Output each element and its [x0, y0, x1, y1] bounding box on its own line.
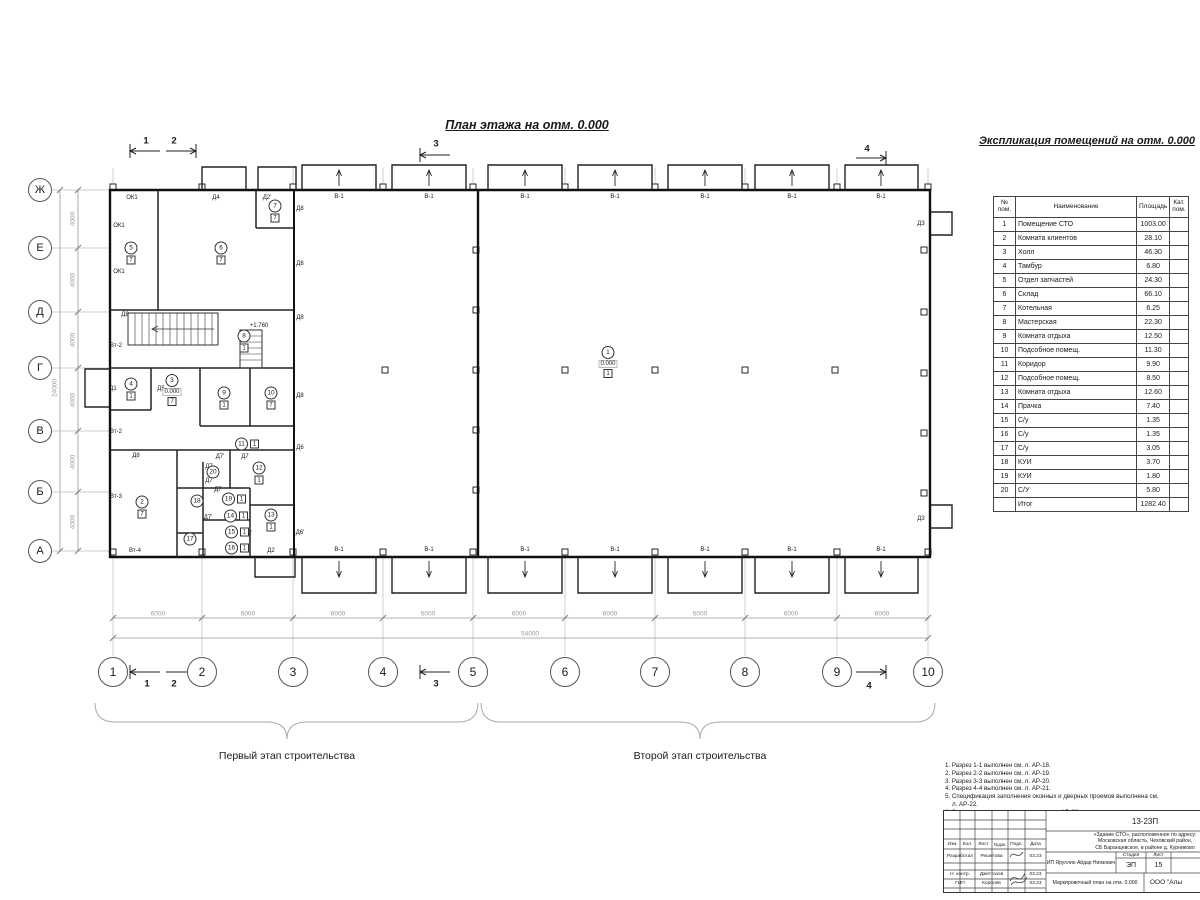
room-marker: 131 [265, 509, 278, 532]
col-category: Кат. пом. [1170, 197, 1188, 218]
plan-label: Д8 [132, 453, 139, 459]
plan-label: В-1 [700, 194, 709, 200]
table-row: 4Тамбур6.80 [994, 260, 1189, 274]
tb-date: 03.23 [1025, 879, 1046, 888]
room-number: 4 [125, 378, 138, 391]
room-number: 14 [224, 510, 237, 523]
project-address: «Здание СТО», расположенное по адресу: М… [1046, 831, 1200, 852]
section-marker-label: 2 [171, 136, 176, 147]
floor-type-mark: 1 [239, 512, 248, 521]
floor-type-mark: 7 [267, 401, 276, 410]
room-number: 15 [225, 526, 238, 539]
room-marker: 41 [125, 378, 138, 401]
table-row: 10Подсобное помещ.11.30 [994, 344, 1189, 358]
plan-label: Д1 [109, 386, 116, 392]
tb-role: Разработал [945, 849, 975, 863]
floor-type-mark: 1 [237, 495, 246, 504]
explication-title: Экспликация помещений на отм. 0.000 [979, 135, 1195, 147]
axis-bubble-9: 9 [822, 657, 852, 687]
tb-col-podp: Подп. [1008, 839, 1025, 849]
tb-name: Королев [975, 879, 1008, 888]
grid-and-columns [52, 168, 931, 656]
room-number: 5 [125, 242, 138, 255]
table-row: 18КУИ3.70 [994, 456, 1189, 470]
plan-label: В-1 [424, 547, 433, 553]
sheet-value: 15 [1146, 858, 1171, 873]
room-marker: 111 [235, 438, 259, 451]
plan-label: В-1 [334, 547, 343, 553]
dimension-label: 4000 [70, 212, 77, 226]
col-name: Наименование [1016, 197, 1137, 218]
table-row: 8Мастерская22.30 [994, 316, 1189, 330]
note-line: 2. Разрез 2-2 выполнен см. л. АР-19. [945, 770, 1165, 778]
axis-bubble-Е: Е [28, 236, 52, 260]
section-marker-label: 1 [144, 679, 149, 690]
floor-type-mark: 1 [240, 344, 249, 353]
plan-label: Вт-2 [110, 343, 122, 349]
plan-label: Д8 [296, 393, 303, 399]
table-row: 20С/У5.80 [994, 484, 1189, 498]
total-value: 1282.40 [1137, 498, 1170, 512]
room-marker: 81 [238, 330, 251, 353]
tb-col-izm: Изм [944, 839, 960, 849]
plan-label: Д2 [267, 548, 274, 554]
tb-role: ГИП [945, 879, 975, 888]
plan-label: Д4 [212, 195, 219, 201]
tb-col-data: Дата [1025, 839, 1046, 849]
dimension-label: 6000 [331, 611, 345, 618]
floor-type-mark: 1 [603, 369, 612, 378]
plan-label: Д3 [917, 221, 924, 227]
room-marker: 91 [218, 387, 231, 410]
table-row: 12Подсобное помещ.8.50 [994, 372, 1189, 386]
plan-label: Д8 [121, 312, 128, 318]
stage-value: ЭП [1116, 858, 1146, 873]
dimension-label: 4000 [70, 455, 77, 469]
plan-label: В-1 [610, 547, 619, 553]
gate-bays [85, 165, 952, 593]
room-marker: 151 [225, 526, 249, 539]
axis-bubble-1: 1 [98, 657, 128, 687]
note-line: 5. Спецификация заполнения оконных и две… [945, 793, 1165, 809]
tb-col-list: Лист [975, 839, 992, 849]
plan-label: +1.760 [250, 323, 269, 329]
dimension-label: 6000 [875, 611, 889, 618]
room-marker: 77 [269, 200, 282, 223]
floor-type-mark: 1 [250, 440, 259, 449]
table-row: 1Помещение СТО1003.00 [994, 218, 1189, 232]
elevation-mark: 0.000 [598, 360, 617, 368]
room-marker: 191 [222, 493, 246, 506]
table-row: 15С/у1.35 [994, 414, 1189, 428]
table-row: 14Прачка7.40 [994, 400, 1189, 414]
plan-label: Д6 [296, 445, 303, 451]
room-marker: 161 [225, 542, 249, 555]
table-row: 17С/у3.05 [994, 442, 1189, 456]
section-marker-label: 4 [866, 681, 871, 692]
table-row: 5Отдел запчастей24.30 [994, 274, 1189, 288]
dimension-label: 4000 [70, 273, 77, 287]
axis-bubble-8: 8 [730, 657, 760, 687]
plan-label: В-1 [787, 194, 796, 200]
tb-name: Решетова [975, 849, 1008, 863]
floor-type-mark: 7 [127, 256, 136, 265]
room-marker: 18 [191, 495, 204, 508]
note-line: 1. Разрез 1-1 выполнен см. л. АР-18. [945, 762, 1165, 770]
room-number: 13 [265, 509, 278, 522]
room-number: 17 [184, 533, 197, 546]
plan-label: Д8 [296, 206, 303, 212]
plan-label: ОК1 [113, 223, 125, 229]
dimension-label: 4000 [70, 333, 77, 347]
stage-braces [95, 703, 935, 739]
dimension-total-label: 54000 [521, 631, 539, 638]
drawing-notes: 1. Разрез 1-1 выполнен см. л. АР-18.2. Р… [945, 762, 1165, 816]
room-marker: 30.0007 [162, 374, 181, 406]
dimension-label: 6000 [512, 611, 526, 618]
axis-bubble-5: 5 [458, 657, 488, 687]
room-marker: 17 [184, 533, 197, 546]
plan-label: ОК1 [126, 195, 138, 201]
dimension-label: 6000 [784, 611, 798, 618]
room-marker: 121 [253, 462, 266, 485]
client-name: ИП Яруллин Айдар Ниязович [1046, 852, 1116, 873]
section-arrows [130, 144, 886, 679]
room-marker: 20 [207, 466, 220, 479]
plan-label: В-1 [520, 547, 529, 553]
room-number: 7 [269, 200, 282, 213]
table-row: 6Склад66.10 [994, 288, 1189, 302]
section-marker-label: 3 [433, 679, 438, 690]
plan-label: В-1 [334, 194, 343, 200]
axis-bubble-Б: Б [28, 480, 52, 504]
plan-label: Д8 [296, 315, 303, 321]
floor-type-mark: 7 [167, 397, 176, 406]
floor-type-mark: 1 [255, 476, 264, 485]
dimension-label: 6000 [693, 611, 707, 618]
room-number: 9 [218, 387, 231, 400]
dimension-baselines [60, 190, 928, 638]
axis-bubble-В: В [28, 419, 52, 443]
drawing-sheet: ЖЕДГВБА123456789106000600060006000600060… [0, 0, 1200, 900]
plan-label: Вт-3 [110, 494, 122, 500]
tb-col-doc: №док. [992, 839, 1008, 849]
dimension-label: 6000 [151, 611, 165, 618]
plan-label: Д7' [216, 454, 225, 460]
room-marker: 67 [215, 242, 228, 265]
total-label: Итог [1016, 498, 1137, 512]
section-marker-label: 3 [433, 139, 438, 150]
room-number: 16 [225, 542, 238, 555]
table-row: 16С/у1.35 [994, 428, 1189, 442]
plan-label: Вт-4 [129, 548, 141, 554]
axis-bubble-3: 3 [278, 657, 308, 687]
room-marker: 107 [265, 387, 278, 410]
dimension-total-label: 24000 [52, 379, 59, 397]
floor-type-mark: 7 [217, 256, 226, 265]
doc-number: 13-23П [1046, 811, 1200, 831]
room-marker: 27 [136, 496, 149, 519]
plan-label: Д7' [204, 515, 213, 521]
sheet-title: Маркировочный план на отм. 0.000 [1046, 873, 1144, 892]
dimension-label: 6000 [241, 611, 255, 618]
room-marker: 57 [125, 242, 138, 265]
tb-col-kol: Кол. [960, 839, 975, 849]
plan-label: В-1 [700, 547, 709, 553]
floor-type-mark: 1 [127, 392, 136, 401]
plan-label: Д7 [241, 454, 248, 460]
room-number: 12 [253, 462, 266, 475]
tb-date: 03.23 [1025, 849, 1046, 863]
col-room-number: № пом. [994, 197, 1016, 218]
axis-bubble-4: 4 [368, 657, 398, 687]
room-marker: 141 [224, 510, 248, 523]
note-line: 4. Разрез 4-4 выполнен см. л. АР-21. [945, 785, 1165, 793]
table-header-row: № пом. Наименование Площадь Кат. пом. [994, 197, 1189, 218]
plan-label: ОК1 [113, 269, 125, 275]
plan-label: Д6' [296, 530, 305, 536]
axis-bubble-2: 2 [187, 657, 217, 687]
axis-bubble-10: 10 [913, 657, 943, 687]
room-number: 18 [191, 495, 204, 508]
axis-bubble-6: 6 [550, 657, 580, 687]
plan-label: В-1 [876, 194, 885, 200]
floor-type-mark: 1 [220, 401, 229, 410]
floor-type-mark: 1 [240, 544, 249, 553]
tb-name: Джеттазов [975, 870, 1008, 879]
floor-type-mark: 1 [267, 523, 276, 532]
plan-label: В-1 [610, 194, 619, 200]
stage1-label: Первый этап строительства [219, 750, 355, 762]
section-marker-label: 1 [143, 136, 148, 147]
dimension-label: 4000 [70, 515, 77, 529]
room-number: 19 [222, 493, 235, 506]
plan-label: В-1 [520, 194, 529, 200]
dimension-label: 4000 [70, 393, 77, 407]
floor-type-mark: 7 [138, 510, 147, 519]
plan-label: В-1 [424, 194, 433, 200]
organization-name: ООО "Алы [1144, 873, 1200, 892]
title-block: Изм Кол. Лист №док. Подп. Дата Разработа… [943, 810, 1200, 893]
section-marker-label: 2 [171, 679, 176, 690]
section-marker-label: 4 [864, 144, 869, 155]
plan-title: План этажа на отм. 0.000 [445, 118, 609, 132]
dimension-label: 6000 [421, 611, 435, 618]
stage2-label: Второй этап строительства [634, 750, 767, 762]
axis-bubble-А: А [28, 539, 52, 563]
table-row: 13Комната отдыха12.60 [994, 386, 1189, 400]
floor-type-mark: 7 [271, 214, 280, 223]
tb-date: 03.23 [1025, 870, 1046, 879]
plan-label: Д3 [917, 516, 924, 522]
room-number: 3 [165, 374, 178, 387]
plan-label: Д7 [214, 487, 221, 493]
plan-label: Д7 [205, 478, 212, 484]
note-line: 3. Разрез 3-3 выполнен см. л. АР-20. [945, 778, 1165, 786]
room-marker: 10.0001 [598, 346, 617, 378]
floor-type-mark: 1 [240, 528, 249, 537]
plan-label: В-1 [787, 547, 796, 553]
room-number: 8 [238, 330, 251, 343]
room-number: 10 [265, 387, 278, 400]
room-number: 20 [207, 466, 220, 479]
room-number: 2 [136, 496, 149, 509]
table-total-row: Итог 1282.40 [994, 498, 1189, 512]
axis-bubble-Г: Г [28, 356, 52, 380]
room-number: 11 [235, 438, 248, 451]
table-row: 7Котельная6.25 [994, 302, 1189, 316]
plan-label: Вт-2 [110, 429, 122, 435]
explication-table: № пом. Наименование Площадь Кат. пом. 1П… [993, 196, 1189, 512]
dimension-label: 6000 [603, 611, 617, 618]
axis-bubble-Д: Д [28, 300, 52, 324]
table-row: 11Коридор9.90 [994, 358, 1189, 372]
col-area: Площадь [1137, 197, 1170, 218]
table-row: 9Комната отдыха12.50 [994, 330, 1189, 344]
axis-bubble-Ж: Ж [28, 178, 52, 202]
table-row: 3Холл46.30 [994, 246, 1189, 260]
tb-role: Н. контр. [945, 870, 975, 879]
plan-label: Д8 [296, 261, 303, 267]
table-row: 2Комната клиентов28.10 [994, 232, 1189, 246]
elevation-mark: 0.000 [162, 388, 181, 396]
room-number: 1 [601, 346, 614, 359]
room-number: 6 [215, 242, 228, 255]
plan-label: В-1 [876, 547, 885, 553]
table-row: 19КУИ1.80 [994, 470, 1189, 484]
axis-bubble-7: 7 [640, 657, 670, 687]
